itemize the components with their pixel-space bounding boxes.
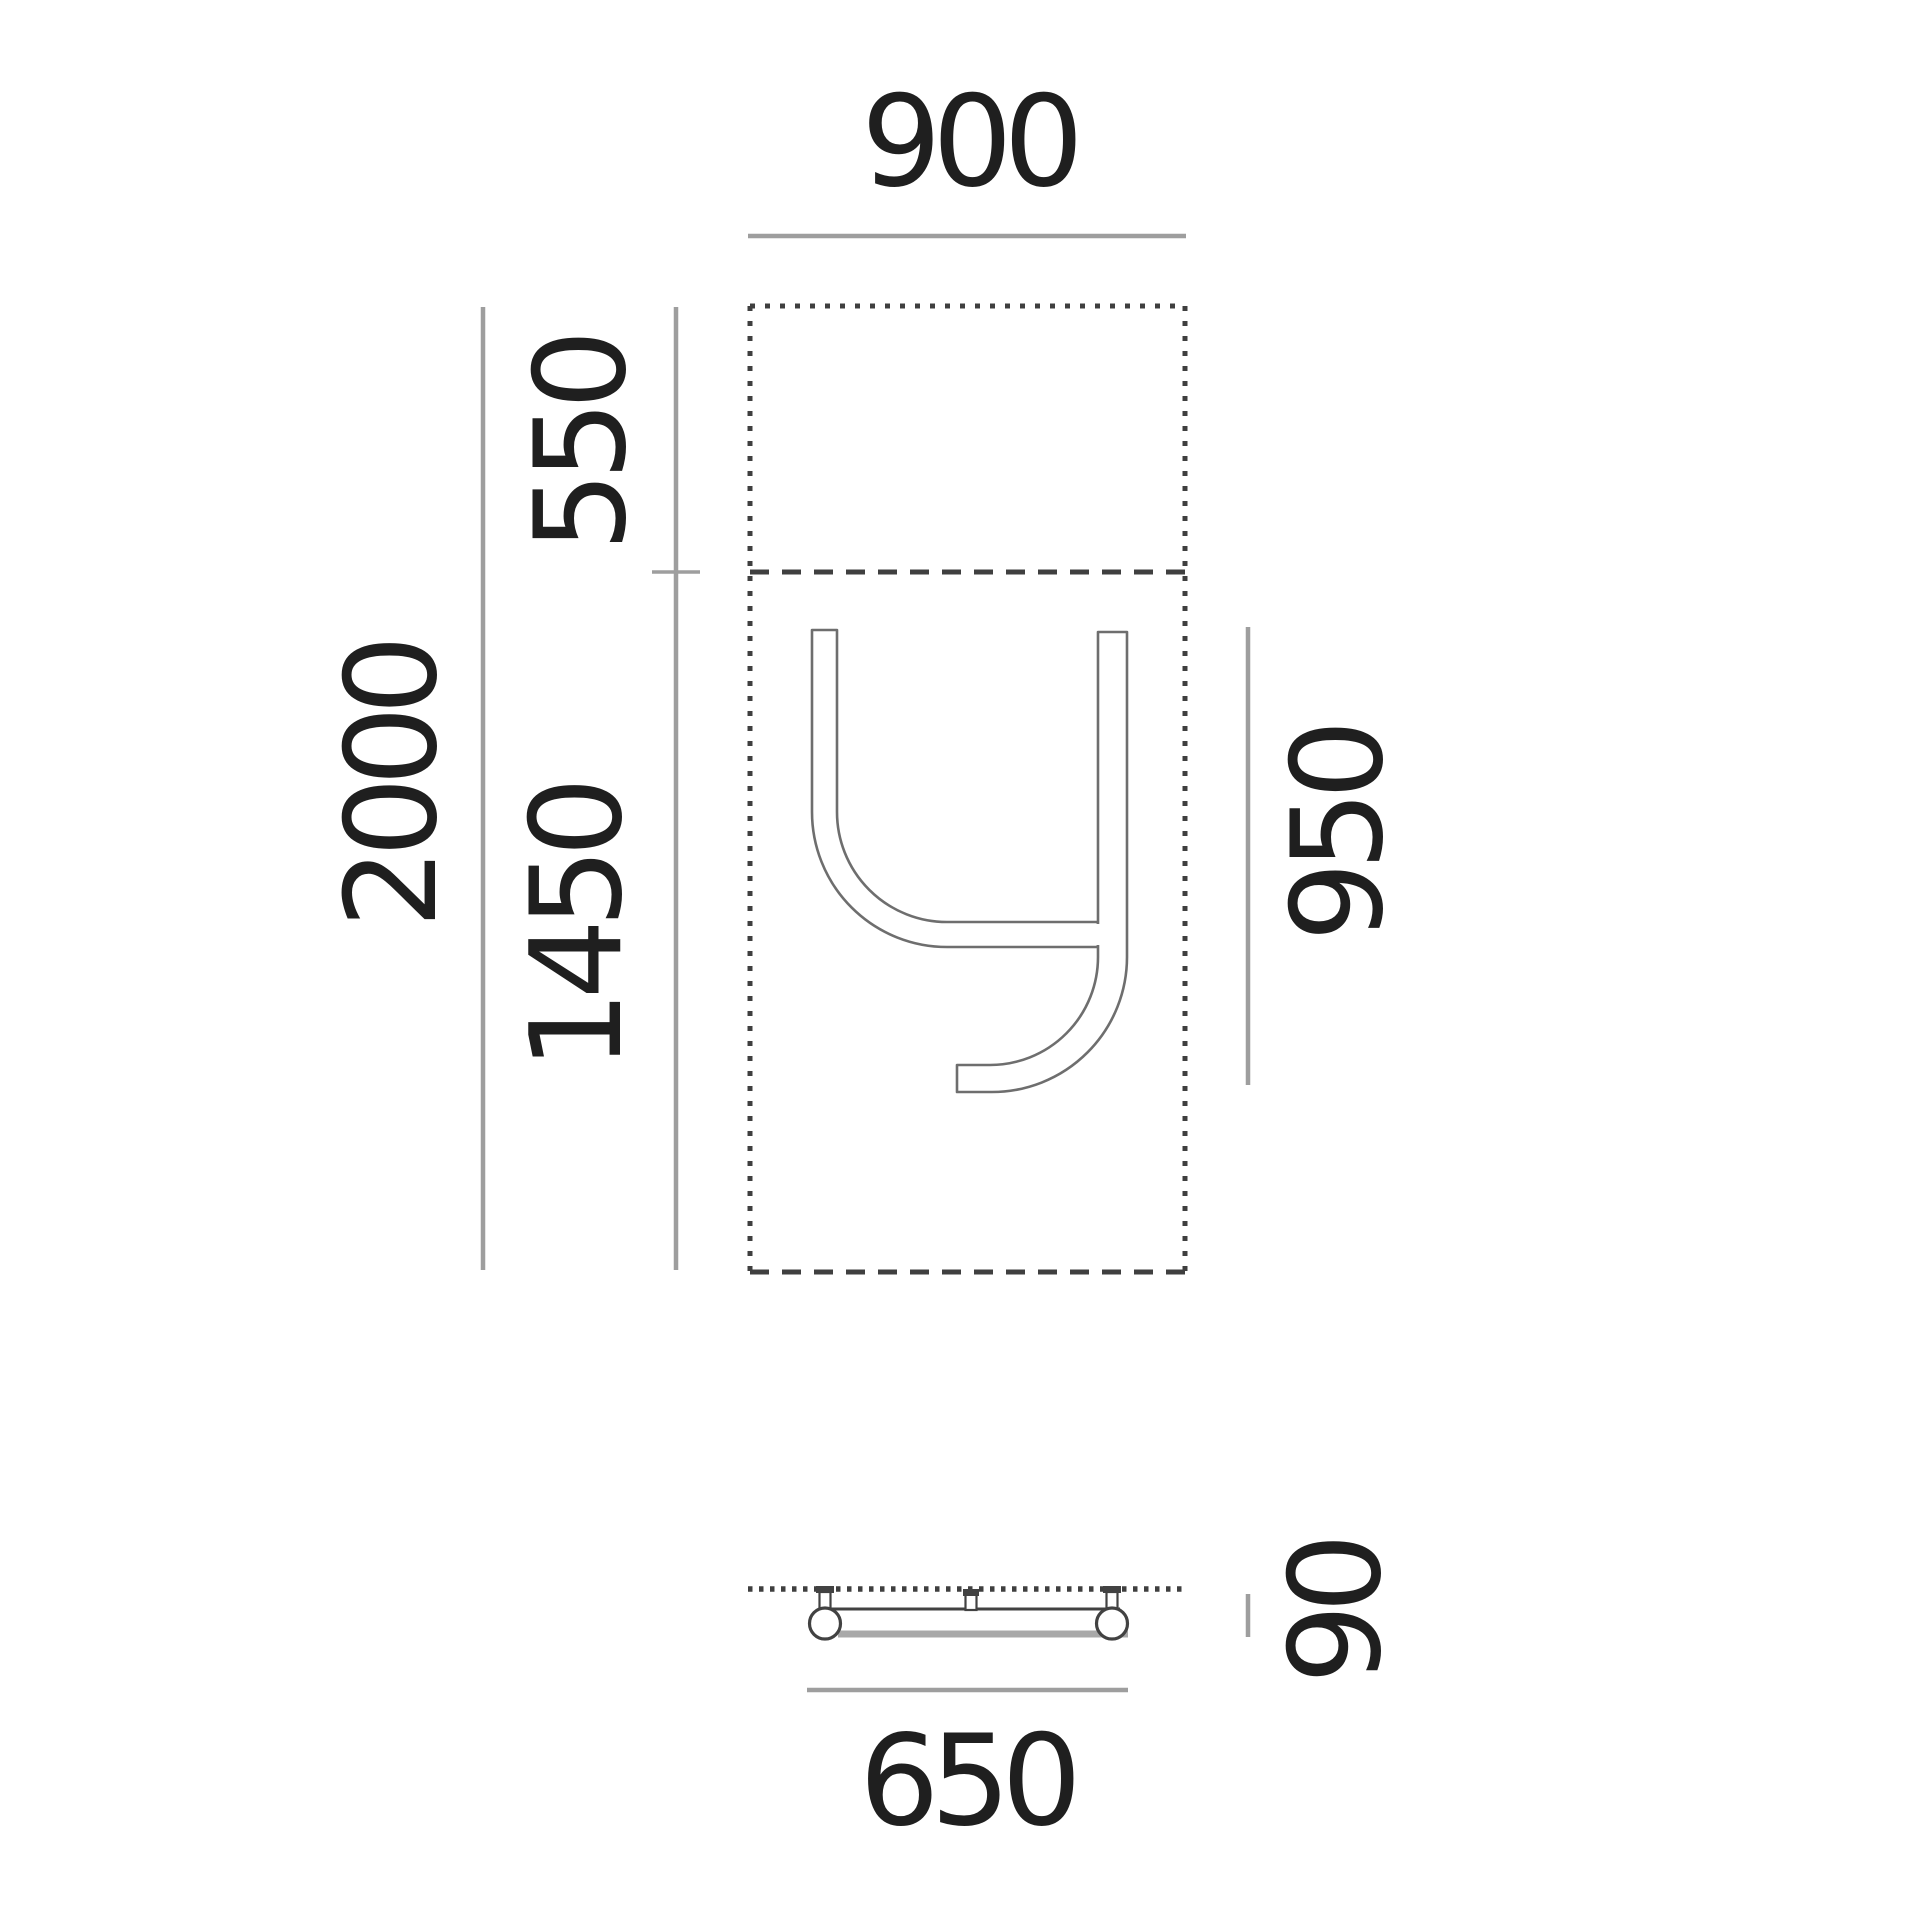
letter-y-shape xyxy=(812,630,1127,1092)
ball-joint-right xyxy=(1097,1608,1128,1639)
screw-left-head xyxy=(816,1586,834,1593)
technical-drawing: 900 2000 550 1450 950 90 650 xyxy=(0,0,1920,1920)
ball-joint-left xyxy=(810,1608,841,1639)
drawing-page: 900 2000 550 1450 950 90 650 xyxy=(0,0,1920,1920)
label-width-900: 900 xyxy=(861,68,1075,215)
bottom-view xyxy=(748,1586,1188,1639)
letter-y-right-stroke xyxy=(957,632,1127,1092)
screw-right-head xyxy=(1103,1586,1121,1593)
label-base-length-650: 650 xyxy=(859,1707,1073,1854)
label-base-depth-90: 90 xyxy=(1262,1541,1409,1684)
label-letter-height-950: 950 xyxy=(1264,727,1411,941)
letter-y-tube-junction xyxy=(1096,924,1101,945)
label-top-section-550: 550 xyxy=(507,337,654,551)
label-overall-height-2000: 2000 xyxy=(318,643,465,928)
screw-middle-head xyxy=(963,1589,979,1596)
label-lower-section-1450: 1450 xyxy=(503,785,650,1070)
letter-y-left-stroke xyxy=(812,630,1098,947)
